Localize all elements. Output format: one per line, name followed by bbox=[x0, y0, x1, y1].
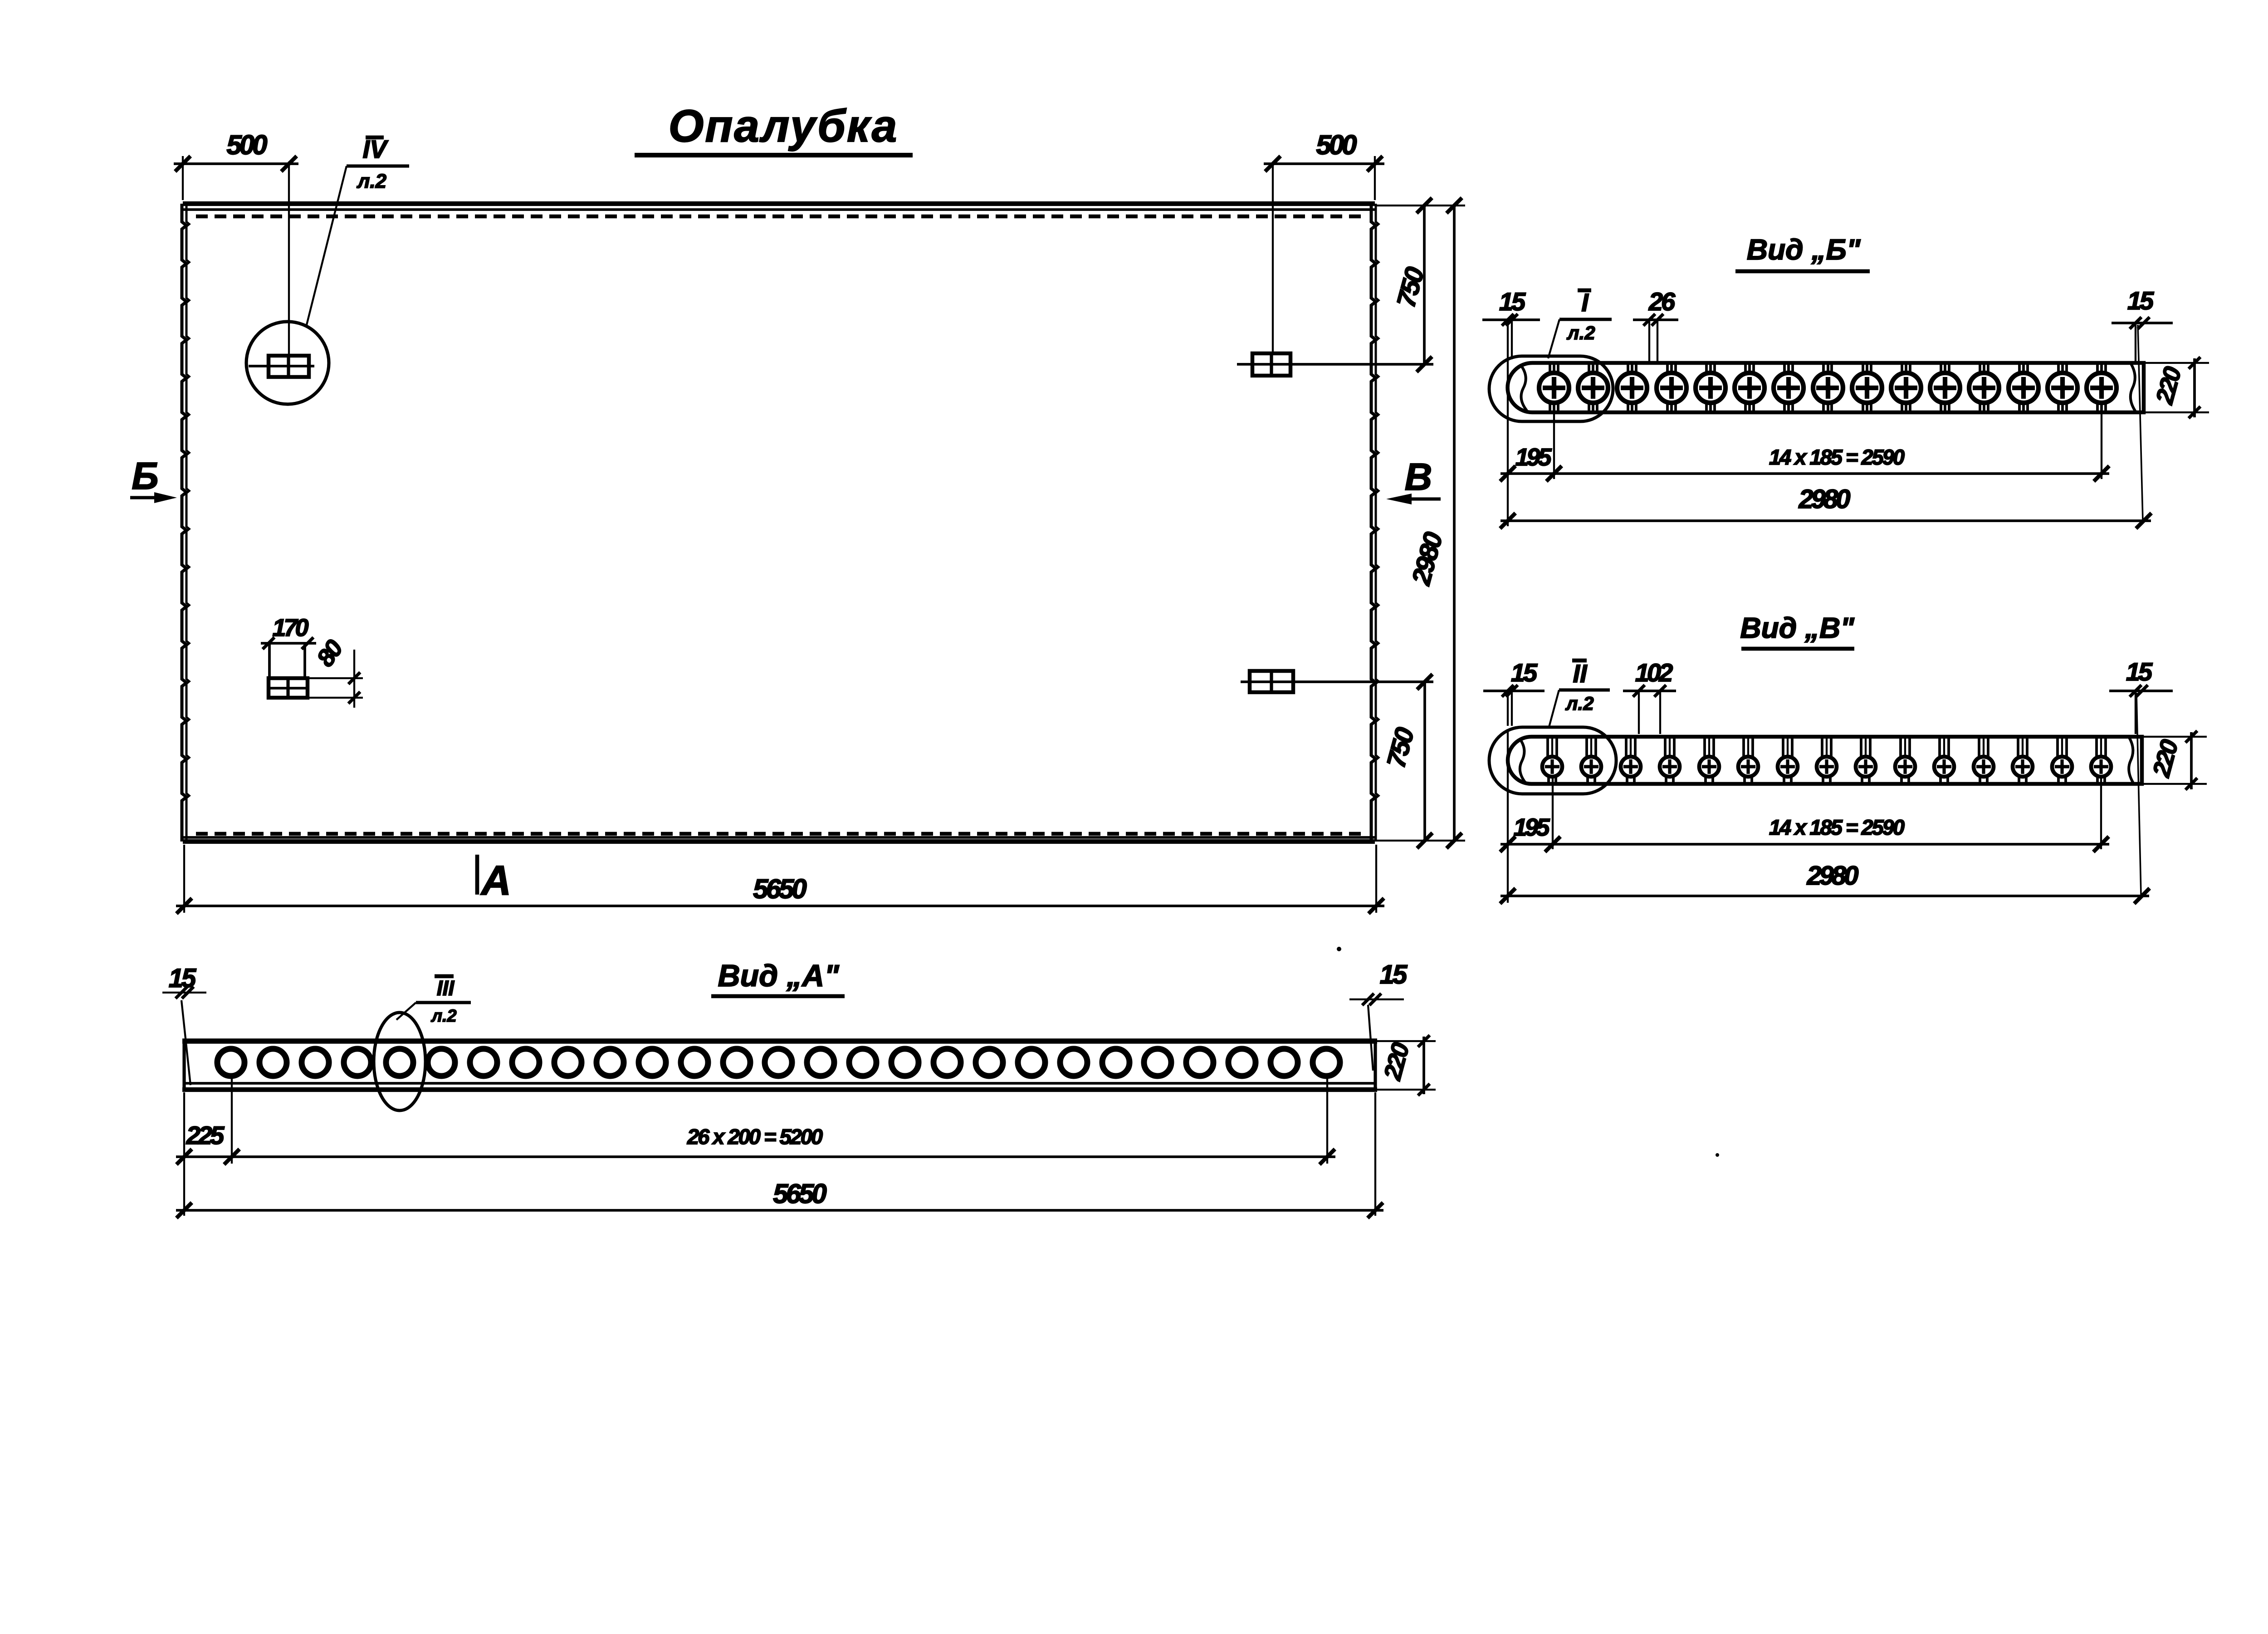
svg-text:14 x 185 = 2590: 14 x 185 = 2590 bbox=[1769, 445, 1905, 469]
svg-text:15: 15 bbox=[1511, 658, 1538, 687]
svg-text:15: 15 bbox=[2126, 657, 2153, 686]
svg-text:II: II bbox=[1573, 659, 1588, 688]
svg-text:л.2: л.2 bbox=[1566, 322, 1595, 343]
svg-text:л.2: л.2 bbox=[357, 170, 387, 192]
svg-text:5650: 5650 bbox=[773, 1179, 826, 1209]
svg-text:15: 15 bbox=[2127, 286, 2154, 315]
svg-text:195: 195 bbox=[1515, 444, 1552, 471]
svg-text:2980: 2980 bbox=[1798, 484, 1850, 514]
svg-text:III: III bbox=[437, 976, 455, 1000]
svg-text:225: 225 bbox=[186, 1121, 225, 1150]
svg-text:В: В bbox=[1405, 455, 1432, 498]
svg-text:14 x 185 = 2590: 14 x 185 = 2590 bbox=[1769, 815, 1905, 839]
svg-text:5650: 5650 bbox=[753, 874, 807, 904]
svg-text:500: 500 bbox=[226, 130, 267, 160]
svg-text:Опалубка: Опалубка bbox=[669, 101, 899, 152]
svg-text:I: I bbox=[1581, 288, 1589, 317]
svg-text:Вид „В": Вид „В" bbox=[1740, 612, 1854, 644]
svg-text:2980: 2980 bbox=[1806, 861, 1858, 890]
svg-text:IV: IV bbox=[363, 135, 389, 163]
svg-text:А: А bbox=[480, 857, 511, 904]
svg-text:26: 26 bbox=[1648, 287, 1676, 316]
svg-text:15: 15 bbox=[1380, 960, 1408, 989]
svg-text:170: 170 bbox=[272, 614, 308, 641]
svg-text:15: 15 bbox=[169, 964, 196, 993]
svg-text:Вид „Б": Вид „Б" bbox=[1747, 233, 1861, 266]
svg-text:Вид „А": Вид „А" bbox=[718, 959, 840, 993]
svg-text:л.2: л.2 bbox=[1565, 693, 1593, 714]
svg-text:л.2: л.2 bbox=[430, 1007, 456, 1026]
svg-text:102: 102 bbox=[1635, 658, 1673, 687]
svg-text:15: 15 bbox=[1499, 287, 1526, 316]
svg-text:500: 500 bbox=[1316, 130, 1357, 160]
svg-text:26 x 200 = 5200: 26 x 200 = 5200 bbox=[687, 1125, 823, 1149]
svg-text:Б: Б bbox=[132, 455, 158, 497]
svg-text:195: 195 bbox=[1513, 814, 1550, 841]
